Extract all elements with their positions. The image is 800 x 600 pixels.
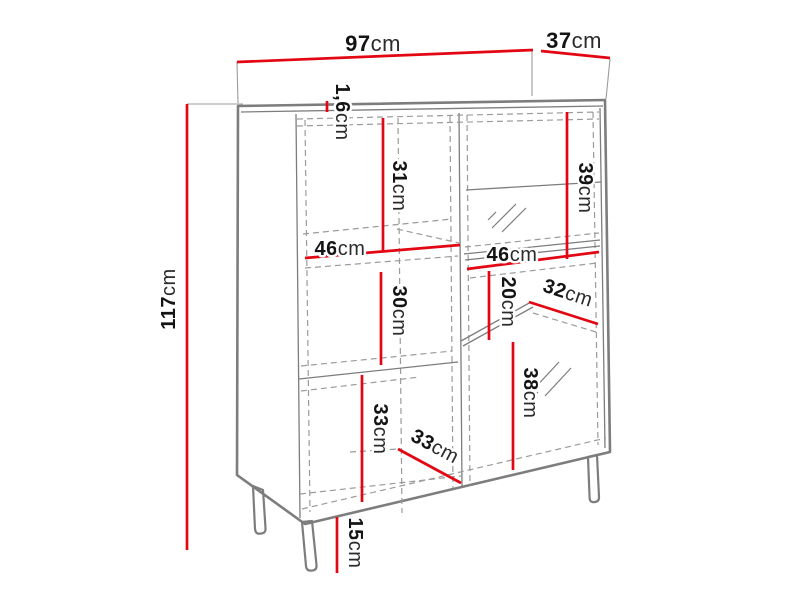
- left-shelf2-under: [301, 377, 420, 391]
- dim-label-left-top-section: 31cm: [388, 161, 410, 212]
- inner-right-edge: [600, 108, 605, 448]
- glass-mark-icon: [502, 208, 526, 232]
- extension-lines: [187, 50, 610, 104]
- dim-label-top-depth: 37cm: [546, 28, 602, 53]
- dim-label-right-shelf-width: 46cm: [487, 244, 538, 266]
- bottom-back-edge-left: [300, 476, 461, 494]
- left-shelf1-back: [303, 219, 452, 234]
- inner-left-edge: [296, 114, 300, 518]
- divider-back-left: [450, 116, 453, 488]
- ext-top-left: [237, 62, 238, 103]
- dim-label-leg-height: 15cm: [344, 518, 366, 569]
- dim-label-height: 117cm: [158, 268, 180, 329]
- center-divider: [459, 113, 462, 487]
- divider-back-right: [467, 115, 470, 486]
- cabinet-legs: [253, 455, 599, 571]
- dim-label-top-thickness: 1,6cm: [331, 84, 353, 141]
- leg-front-left: [302, 521, 317, 571]
- right-shelf2-under: [533, 313, 596, 332]
- cabinet-outer-outline: [237, 100, 610, 524]
- cabinet-diagram-svg: 97cm 37cm 117cm 1,6cm 31cm 46cm 30cm 33c…: [0, 0, 800, 600]
- left-back-edge: [305, 120, 310, 512]
- left-shelf1-depth: [397, 229, 459, 243]
- cabinet-body: [237, 100, 610, 524]
- left-shelf2-front: [299, 362, 458, 379]
- dim-label-right-bottom-section: 38cm: [519, 368, 541, 419]
- glass-mark-icon: [492, 204, 516, 228]
- dim-label-right-top-section: 39cm: [574, 163, 596, 214]
- dim-label-right-middle-section: 20cm: [497, 277, 519, 328]
- furniture-dimension-diagram: 97cm 37cm 117cm 1,6cm 31cm 46cm 30cm 33c…: [0, 0, 800, 600]
- ext-top-right: [606, 59, 610, 99]
- glass-mark-icon: [488, 212, 496, 220]
- leg-right: [588, 455, 599, 502]
- dim-label-top-width: 97cm: [345, 31, 401, 56]
- right-shelf2-side-a: [461, 302, 531, 341]
- dim-label-left-bottom-section: 33cm: [369, 404, 391, 455]
- left-shelf2-back: [301, 351, 452, 366]
- dim-label-right-shelf-depth: 32cm: [540, 275, 595, 312]
- dim-label-left-middle-section: 30cm: [388, 286, 410, 337]
- dim-label-left-bottom-depth: 33cm: [407, 425, 462, 468]
- dim-label-left-shelf-width: 46cm: [315, 238, 366, 260]
- top-panel-bottom-edge: [241, 106, 603, 112]
